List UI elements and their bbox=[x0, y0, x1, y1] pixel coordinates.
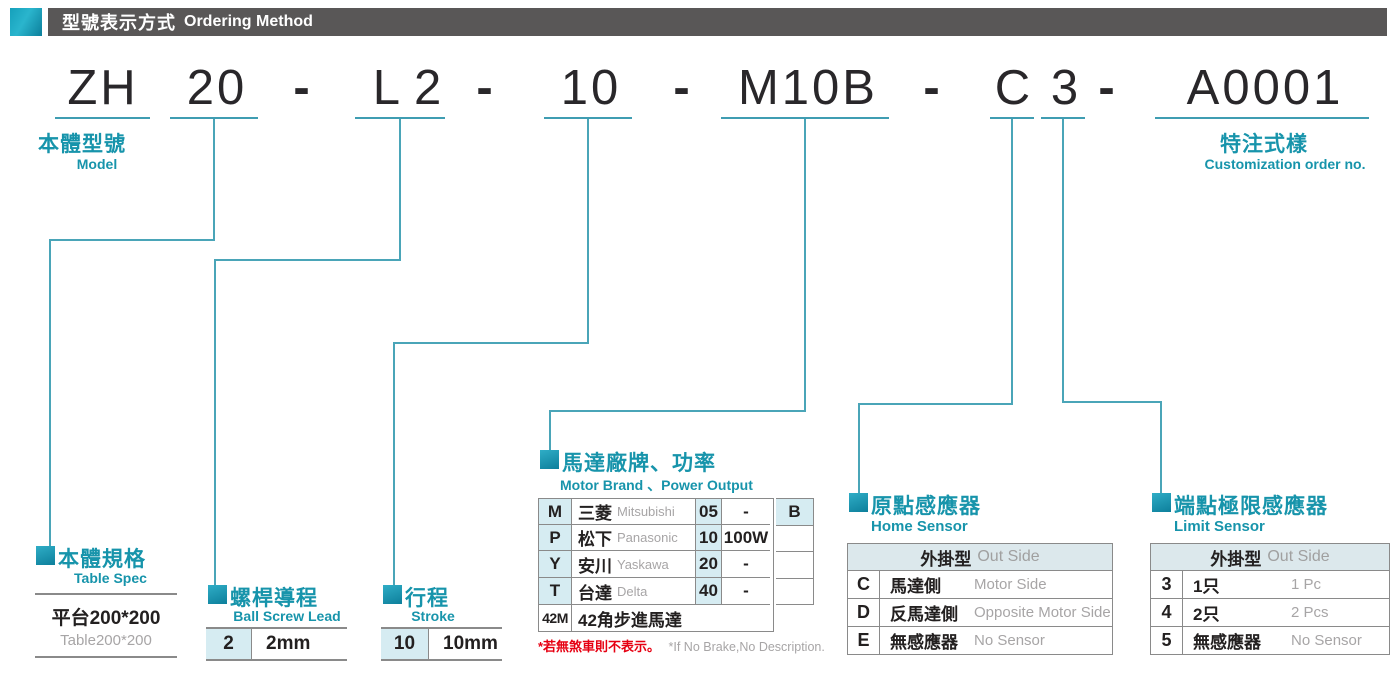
motor-power-code-cell: 10 bbox=[696, 525, 722, 551]
segment-underline bbox=[544, 117, 632, 119]
sensor-code-cell: C bbox=[848, 571, 880, 598]
connector-line bbox=[49, 239, 215, 241]
connector-line bbox=[213, 119, 215, 239]
sensor-label-cell: 無感應器 No Sensor bbox=[880, 627, 1045, 654]
header-accent-square bbox=[10, 8, 42, 36]
sensor-code-cell: 4 bbox=[1151, 599, 1183, 626]
sensor-code-cell: 5 bbox=[1151, 627, 1183, 654]
model-separator: - bbox=[666, 60, 697, 116]
segment-underline bbox=[170, 117, 258, 119]
limit-sensor-table-header: 外掛型 Out Side bbox=[1151, 544, 1389, 571]
ball-screw-table: 2 2mm bbox=[206, 627, 347, 661]
connector-line bbox=[858, 403, 860, 494]
motor-brand-cell: 松下 Panasonic bbox=[572, 525, 696, 551]
sensor-label-zh: 反馬達側 bbox=[890, 600, 964, 625]
motor-brand-en: Mitsubishi bbox=[617, 504, 675, 519]
home-sensor-table-header: 外掛型 Out Side bbox=[848, 544, 1112, 571]
sensor-label-cell: 反馬達側 Opposite Motor Side bbox=[880, 599, 1111, 626]
connector-line bbox=[587, 119, 589, 343]
section-bullet-square bbox=[849, 493, 868, 512]
segment-underline bbox=[990, 117, 1034, 119]
section-bullet-square bbox=[540, 450, 559, 469]
connector-line bbox=[1062, 401, 1162, 403]
ball-screw-code-cell: 2 bbox=[206, 629, 252, 659]
connector-line bbox=[549, 410, 806, 412]
home-sensor-title-zh: 原點感應器 bbox=[871, 490, 981, 520]
home-sensor-row: E 無感應器 No Sensor bbox=[848, 627, 1112, 654]
stroke-title-en: Stroke bbox=[403, 608, 463, 624]
motor-brand-cell: 安川 Yaskawa bbox=[572, 551, 696, 578]
model-segment-lead: L2 bbox=[345, 60, 469, 116]
motor-brake-cell-empty bbox=[776, 579, 813, 606]
motor-brake-cell-empty bbox=[776, 552, 813, 579]
motor-power-code-cell: 20 bbox=[696, 551, 722, 578]
motor-title-en: Motor Brand 、Power Output bbox=[560, 475, 753, 495]
model-label-zh: 本體型號 bbox=[38, 128, 126, 158]
page-title-en: Ordering Method bbox=[184, 13, 313, 31]
connector-line bbox=[549, 410, 551, 451]
model-label-en: Model bbox=[38, 156, 156, 172]
table-spec-value-zh: 平台200*200 bbox=[52, 603, 161, 630]
sensor-label-zh: 1只 bbox=[1193, 572, 1281, 597]
sensor-label-cell: 2只 2 Pcs bbox=[1183, 599, 1329, 626]
model-segment-stroke: 10 bbox=[536, 60, 643, 116]
section-bullet-square bbox=[36, 546, 55, 565]
model-separator: - bbox=[469, 60, 500, 116]
segment-underline bbox=[721, 117, 889, 119]
home-sensor-title-en: Home Sensor bbox=[871, 518, 968, 535]
connector-line bbox=[214, 259, 216, 586]
motor-code-cell: M bbox=[539, 499, 572, 525]
customization-label-en: Customization order no. bbox=[1190, 156, 1380, 172]
motor-code-cell: T bbox=[539, 578, 572, 605]
motor-power-cell: - bbox=[722, 551, 770, 578]
limit-sensor-table: 外掛型 Out Side 3 1只 1 Pc 4 2只 2 Pcs 5 無感應器… bbox=[1150, 543, 1390, 655]
sensor-label-en: No Sensor bbox=[974, 632, 1045, 649]
model-segment-motor: M10B bbox=[723, 60, 890, 116]
segment-underline bbox=[1155, 117, 1369, 119]
sensor-header-en: Out Side bbox=[1267, 548, 1329, 566]
motor-code-cell: Y bbox=[539, 551, 572, 578]
page-title-zh: 型號表示方式 bbox=[62, 9, 176, 35]
model-separator: - bbox=[1091, 60, 1122, 116]
sensor-label-en: Motor Side bbox=[974, 576, 1047, 593]
motor-footnote-en: *If No Brake,No Description. bbox=[669, 640, 825, 654]
connector-line bbox=[399, 119, 401, 260]
sensor-code-cell: E bbox=[848, 627, 880, 654]
connector-line bbox=[393, 342, 395, 586]
limit-sensor-title-en: Limit Sensor bbox=[1174, 518, 1265, 535]
connector-line bbox=[214, 259, 401, 261]
sensor-label-zh: 無感應器 bbox=[1193, 628, 1281, 653]
sensor-label-cell: 馬達側 Motor Side bbox=[880, 571, 1047, 598]
connector-line bbox=[393, 342, 589, 344]
motor-power-code-cell: 40 bbox=[696, 578, 722, 605]
motor-brake-column: B bbox=[776, 498, 814, 605]
table-spec-box: 平台200*200 Table200*200 bbox=[35, 593, 177, 658]
stroke-value-cell: 10mm bbox=[429, 629, 498, 659]
stroke-code-cell: 10 bbox=[381, 629, 429, 659]
motor-brake-cell: B bbox=[776, 499, 813, 526]
sensor-label-en: 2 Pcs bbox=[1291, 604, 1329, 621]
motor-brake-cell-empty bbox=[776, 526, 813, 553]
connector-line bbox=[1062, 119, 1064, 402]
home-sensor-table: 外掛型 Out Side C 馬達側 Motor Side D 反馬達側 Opp… bbox=[847, 543, 1113, 655]
limit-sensor-row: 4 2只 2 Pcs bbox=[1151, 599, 1389, 627]
ball-screw-title-en: Ball Screw Lead bbox=[226, 608, 348, 624]
model-segment-custom: A0001 bbox=[1157, 60, 1370, 116]
motor-code-cell: P bbox=[539, 525, 572, 551]
motor-brand-en: Delta bbox=[617, 584, 647, 599]
customization-label-zh: 特注式樣 bbox=[1220, 128, 1308, 158]
sensor-header-zh: 外掛型 bbox=[920, 545, 971, 570]
motor-stepper-code-cell: 42M bbox=[539, 605, 572, 631]
home-sensor-row: C 馬達側 Motor Side bbox=[848, 571, 1112, 599]
motor-power-cell: 100W bbox=[722, 525, 770, 551]
connector-line bbox=[804, 119, 806, 411]
sensor-label-cell: 1只 1 Pc bbox=[1183, 571, 1321, 598]
limit-sensor-title-zh: 端點極限感應器 bbox=[1174, 490, 1328, 520]
segment-underline bbox=[1041, 117, 1085, 119]
model-segment-series: ZH bbox=[40, 60, 163, 116]
limit-sensor-row: 3 1只 1 Pc bbox=[1151, 571, 1389, 599]
motor-brand-cell: 台達 Delta bbox=[572, 578, 696, 605]
connector-line bbox=[49, 239, 51, 548]
ordering-method-page: 型號表示方式 Ordering Method ZH 20 - L2 - 10 -… bbox=[0, 0, 1393, 675]
model-segment-home-sensor: C bbox=[988, 60, 1037, 116]
motor-brand-en: Panasonic bbox=[617, 530, 678, 545]
section-bullet-square bbox=[1152, 493, 1171, 512]
sensor-label-zh: 2只 bbox=[1193, 600, 1281, 625]
sensor-label-zh: 無感應器 bbox=[890, 628, 964, 653]
ball-screw-value-cell: 2mm bbox=[252, 629, 310, 659]
sensor-label-en: Opposite Motor Side bbox=[974, 604, 1111, 621]
table-spec-title-en: Table Spec bbox=[58, 570, 163, 586]
motor-brand-zh: 松下 bbox=[578, 525, 612, 550]
motor-brand-zh: 安川 bbox=[578, 552, 612, 577]
section-bullet-square bbox=[383, 585, 402, 604]
connector-line bbox=[1160, 401, 1162, 494]
model-segment-limit-sensor: 3 bbox=[1040, 60, 1089, 116]
sensor-header-zh: 外掛型 bbox=[1210, 545, 1261, 570]
table-spec-value-en: Table200*200 bbox=[60, 632, 152, 649]
header-bar: 型號表示方式 Ordering Method bbox=[48, 8, 1387, 36]
segment-underline bbox=[355, 117, 445, 119]
motor-brand-en: Yaskawa bbox=[617, 557, 669, 572]
motor-brand-cell: 三菱 Mitsubishi bbox=[572, 499, 696, 525]
motor-footnote-zh: *若無煞車則不表示。 bbox=[538, 639, 660, 654]
connector-line bbox=[858, 403, 1013, 405]
limit-sensor-row: 5 無感應器 No Sensor bbox=[1151, 627, 1389, 654]
segment-underline bbox=[55, 117, 150, 119]
sensor-header-en: Out Side bbox=[977, 548, 1039, 566]
sensor-code-cell: D bbox=[848, 599, 880, 626]
motor-table: M 三菱 Mitsubishi 05 - P 松下 Panasonic 10 1… bbox=[538, 498, 774, 632]
stroke-table: 10 10mm bbox=[381, 627, 502, 661]
sensor-label-cell: 無感應器 No Sensor bbox=[1183, 627, 1362, 654]
motor-power-cell: - bbox=[722, 578, 770, 605]
motor-power-code-cell: 05 bbox=[696, 499, 722, 525]
model-segment-size: 20 bbox=[162, 60, 269, 116]
sensor-code-cell: 3 bbox=[1151, 571, 1183, 598]
model-separator: - bbox=[286, 60, 317, 116]
sensor-label-zh: 馬達側 bbox=[890, 572, 964, 597]
connector-line bbox=[1011, 119, 1013, 404]
section-bullet-square bbox=[208, 585, 227, 604]
home-sensor-row: D 反馬達側 Opposite Motor Side bbox=[848, 599, 1112, 627]
motor-footnote: *若無煞車則不表示。 *If No Brake,No Description. bbox=[538, 636, 825, 656]
model-separator: - bbox=[916, 60, 947, 116]
motor-power-cell: - bbox=[722, 499, 770, 525]
motor-brand-zh: 三菱 bbox=[578, 499, 612, 524]
sensor-label-en: 1 Pc bbox=[1291, 576, 1321, 593]
motor-stepper-label-cell: 42角步進馬達 bbox=[572, 605, 770, 631]
motor-brand-zh: 台達 bbox=[578, 579, 612, 604]
motor-title-zh: 馬達廠牌、功率 bbox=[562, 447, 716, 477]
sensor-label-en: No Sensor bbox=[1291, 632, 1362, 649]
table-spec-title-zh: 本體規格 bbox=[58, 543, 146, 573]
